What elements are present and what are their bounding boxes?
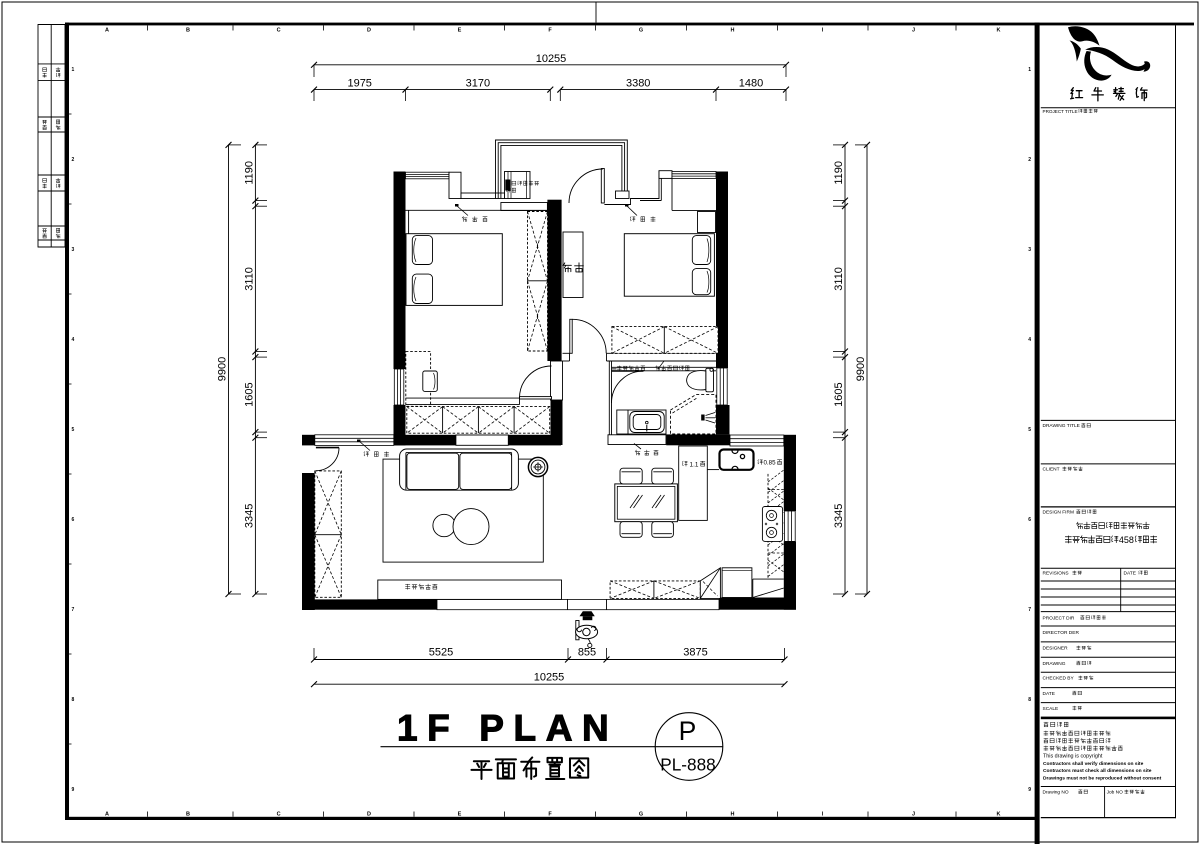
svg-text:E: E	[458, 28, 462, 34]
svg-text:10255: 10255	[534, 672, 565, 684]
svg-text:J: J	[912, 28, 915, 34]
svg-text:C: C	[277, 812, 281, 818]
svg-text:1605: 1605	[833, 382, 845, 406]
svg-text:9: 9	[1028, 787, 1031, 793]
svg-text:H: H	[731, 812, 735, 818]
svg-text:9900: 9900	[217, 357, 229, 381]
svg-text:3875: 3875	[683, 647, 707, 659]
svg-text:9900: 9900	[855, 357, 867, 381]
svg-text:5: 5	[1028, 427, 1031, 433]
svg-text:10255: 10255	[536, 53, 567, 65]
svg-text:1.1: 1.1	[690, 461, 699, 468]
svg-text:P: P	[679, 716, 697, 746]
svg-text:4: 4	[1028, 337, 1031, 343]
svg-text:Contractors must check all dim: Contractors must check all dimensions on…	[1043, 768, 1152, 774]
svg-text:Contractors shall verify dimen: Contractors shall verify dimensions on s…	[1043, 761, 1144, 767]
svg-text:8: 8	[1028, 697, 1031, 703]
svg-text:This drawing is copyright: This drawing is copyright	[1043, 753, 1103, 759]
svg-text:B: B	[186, 28, 190, 34]
svg-text:3: 3	[72, 247, 75, 253]
svg-text:D: D	[367, 812, 371, 818]
svg-text:CLIENT: CLIENT	[1043, 467, 1060, 473]
svg-text:1: 1	[72, 67, 75, 73]
svg-text:3345: 3345	[243, 504, 255, 528]
svg-text:2: 2	[72, 157, 75, 163]
svg-text:3: 3	[1028, 247, 1031, 253]
svg-text:G: G	[639, 28, 643, 34]
svg-text:1F PLAN: 1F PLAN	[397, 708, 618, 749]
svg-text:DIRECTOR DER: DIRECTOR DER	[1043, 630, 1080, 636]
svg-text:5: 5	[72, 427, 75, 433]
svg-text:3380: 3380	[626, 77, 650, 89]
svg-text:K: K	[997, 28, 1001, 34]
svg-text:1: 1	[1028, 67, 1031, 73]
svg-text:PROJECT DIR: PROJECT DIR	[1043, 615, 1075, 621]
svg-text:1190: 1190	[243, 161, 255, 185]
svg-text:DRAWING TITLE: DRAWING TITLE	[1043, 423, 1080, 429]
svg-text:855: 855	[578, 647, 596, 659]
svg-text:DATE: DATE	[1124, 571, 1136, 577]
svg-text:1975: 1975	[347, 77, 371, 89]
svg-text:PL-888: PL-888	[660, 755, 715, 775]
svg-text:CHECKED BY: CHECKED BY	[1043, 676, 1075, 682]
svg-text:A: A	[105, 28, 109, 34]
svg-text:458: 458	[1119, 535, 1134, 545]
svg-text:Drawing NO: Drawing NO	[1043, 790, 1069, 796]
svg-text:1480: 1480	[739, 77, 763, 89]
svg-text:6: 6	[72, 517, 75, 523]
svg-text:H: H	[731, 28, 735, 34]
svg-text:2: 2	[1028, 157, 1031, 163]
svg-text:1190: 1190	[833, 161, 845, 185]
svg-text:Drawings must not be reproduce: Drawings must not be reproduced without …	[1043, 775, 1162, 781]
svg-text:8: 8	[72, 697, 75, 703]
svg-text:A: A	[105, 812, 109, 818]
svg-text:DATE: DATE	[1043, 691, 1055, 697]
svg-text:SCALE: SCALE	[1043, 706, 1059, 712]
svg-text:PROJECT TITLE: PROJECT TITLE	[1043, 109, 1078, 114]
svg-text:C: C	[277, 28, 281, 34]
svg-text:5525: 5525	[429, 647, 453, 659]
svg-text:DESIGN FIRM: DESIGN FIRM	[1043, 510, 1074, 516]
svg-text:9: 9	[72, 787, 75, 793]
svg-text:DRAWING: DRAWING	[1043, 661, 1066, 667]
svg-text:3110: 3110	[243, 267, 255, 291]
svg-text:7: 7	[1028, 607, 1031, 613]
svg-text:4: 4	[72, 337, 75, 343]
svg-text:G: G	[639, 812, 643, 818]
svg-text:1605: 1605	[243, 382, 255, 406]
svg-text:J: J	[912, 812, 915, 818]
svg-text:REVISIONS: REVISIONS	[1043, 571, 1069, 577]
svg-text:Job NO: Job NO	[1107, 790, 1124, 796]
svg-text:D: D	[367, 28, 371, 34]
svg-text:K: K	[997, 812, 1001, 818]
svg-text:DESIGNER: DESIGNER	[1043, 646, 1069, 652]
svg-text:3110: 3110	[833, 267, 845, 291]
svg-text:0.85: 0.85	[763, 460, 776, 467]
svg-text:6: 6	[1028, 517, 1031, 523]
svg-text:E: E	[458, 812, 462, 818]
svg-text:3345: 3345	[833, 504, 845, 528]
svg-text:3170: 3170	[466, 77, 490, 89]
svg-text:B: B	[186, 812, 190, 818]
svg-text:7: 7	[72, 607, 75, 613]
